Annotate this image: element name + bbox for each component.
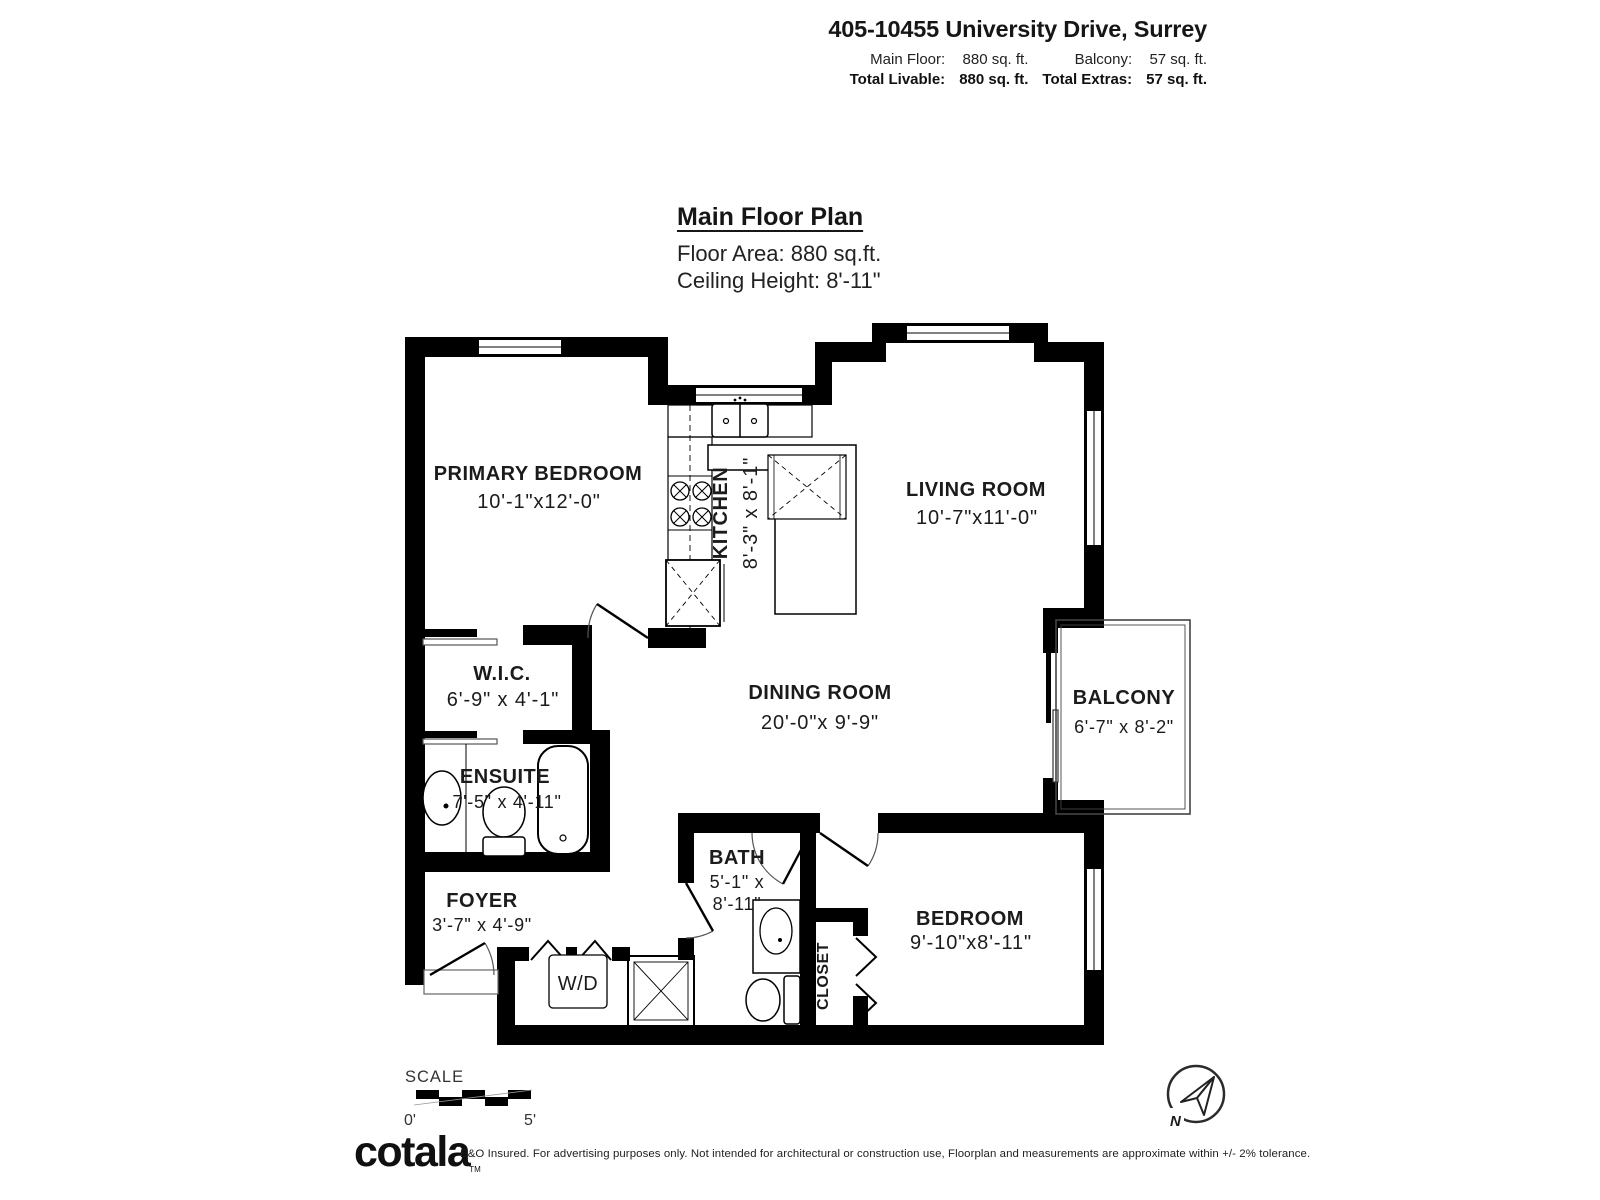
shower-icon [628,956,694,1026]
dining-room-label: DINING ROOM [748,682,891,704]
total-livable-value: 880 sq. ft. [959,71,1028,88]
scale-bar: SCALE 0' 5' [402,1068,538,1130]
total-extras-label: Total Extras: [1042,71,1132,88]
floorplan-drawing: PRIMARY BEDROOM 10'-1"x12'-0" KITCHEN 8'… [0,0,1600,1200]
ensuite-sliding-door [420,731,497,744]
main-floor-value: 880 sq. ft. [959,51,1028,68]
footer-disclaimer: E&O Insured. For advertising purposes on… [460,1148,1310,1160]
area-stats: Main Floor: 880 sq. ft. Balcony: 57 sq. … [828,51,1207,88]
primary-bedroom-dims: 10'-1"x12'-0" [477,491,601,513]
primary-bedroom-door [588,604,648,638]
window-living-room-right [1084,406,1104,550]
stove-icon [668,476,712,530]
wic-label: W.I.C. [473,663,530,685]
bedroom-door [820,833,878,866]
header: 405-10455 University Drive, Surrey Main … [828,16,1207,88]
kitchen-label: KITCHEN [710,467,732,559]
bedroom-label: BEDROOM [916,908,1024,930]
total-livable-label: Total Livable: [850,71,946,88]
balcony-label: BALCONY [1073,687,1176,709]
window-primary-bedroom [474,337,566,357]
bath-dims-line2: 8'-11" [713,894,762,914]
cotala-logo-text: cotala [354,1128,469,1176]
plan-title: Main Floor Plan [677,203,881,232]
dining-room-dims: 20'-0"x 9'-9" [761,712,879,734]
window-bedroom [1084,864,1104,975]
window-living-room-top [902,323,1014,343]
scale-bar-graphic [402,1087,538,1107]
property-address: 405-10455 University Drive, Surrey [828,16,1207,43]
bath-toilet-icon [746,976,800,1024]
floor-area-line: Floor Area: 880 sq.ft. [677,241,881,268]
balcony-dims: 6'-7" x 8'-2" [1074,717,1174,737]
washer-dryer-label: W/D [558,973,598,995]
total-extras-value: 57 sq. ft. [1146,71,1207,88]
balcony-label: Balcony: [1042,51,1132,68]
fridge-icon [666,560,724,626]
window-kitchen [691,385,807,405]
wic-sliding-door [420,629,497,645]
title-block: Main Floor Plan Floor Area: 880 sq.ft. C… [677,203,881,295]
living-room-label: LIVING ROOM [906,479,1046,501]
dishwasher-icon [768,455,846,519]
plan-bath-fixtures [628,900,800,1026]
compass-north-label: N [1170,1113,1182,1130]
bath-label: BATH [709,847,765,869]
main-floor-label: Main Floor: [850,51,946,68]
plan-windows [474,323,1104,975]
kitchen-dims: 8'-3" x 8'-1" [740,457,762,569]
ensuite-dims: 7'-5" x 4'-11" [452,792,561,812]
primary-bedroom-label: PRIMARY BEDROOM [434,463,643,485]
north-compass-icon: N [1154,1052,1238,1136]
bath-dims-line1: 5'-1" x [710,872,765,892]
ensuite-label: ENSUITE [460,766,550,788]
balcony-value: 57 sq. ft. [1146,51,1207,68]
foyer-dims: 3'-7" x 4'-9" [432,915,532,935]
scale-end: 5' [524,1112,536,1130]
scale-label: SCALE [405,1068,538,1087]
floorplan-page: PRIMARY BEDROOM 10'-1"x12'-0" KITCHEN 8'… [0,0,1600,1200]
living-room-dims: 10'-7"x11'-0" [916,507,1038,529]
closet-label: CLOSET [815,942,832,1010]
wic-dims: 6'-9" x 4'-1" [447,689,559,711]
ceiling-height-line: Ceiling Height: 8'-11" [677,268,881,295]
trademark-mark: TM [469,1165,481,1174]
foyer-label: FOYER [446,890,517,912]
entry-door [424,943,498,994]
bedroom-dims: 9'-10"x8'-11" [910,932,1032,954]
